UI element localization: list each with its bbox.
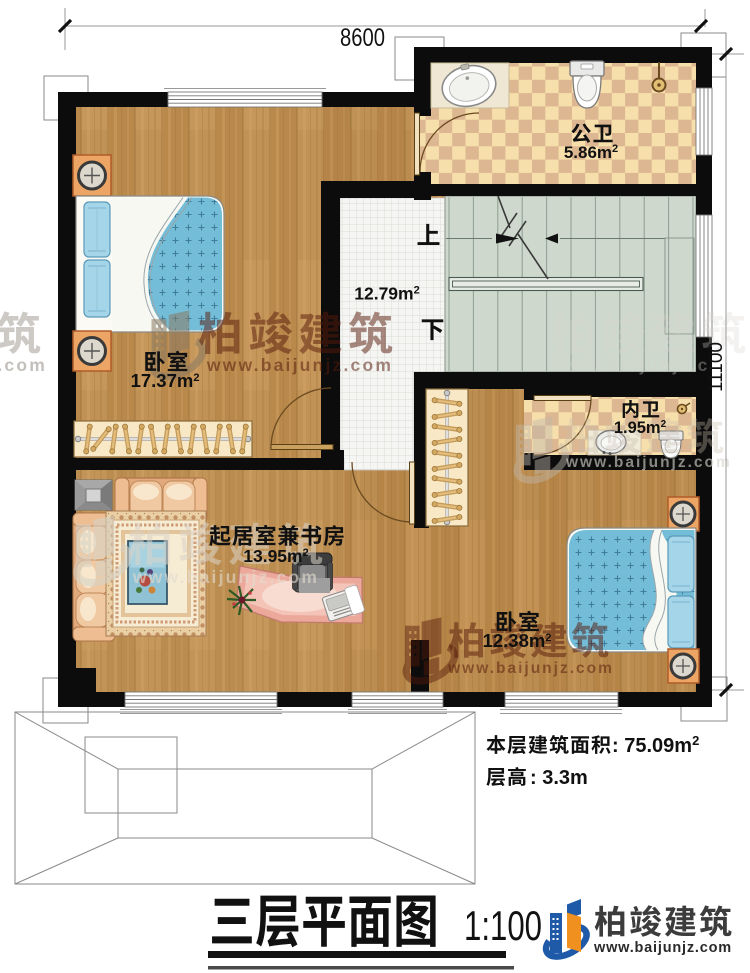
- svg-text:www.baijunjz.com: www.baijunjz.com: [593, 940, 732, 956]
- svg-text:z.com: z.com: [0, 355, 47, 375]
- svg-text:www.baijunjz.c: www.baijunjz.c: [553, 355, 710, 375]
- svg-text:17.37m2: 17.37m2: [131, 370, 200, 391]
- svg-text:: 3.3m: : 3.3m: [530, 767, 588, 789]
- svg-text:www.baijunjz.com: www.baijunjz.com: [132, 567, 319, 587]
- svg-text:www.baijunjz.com: www.baijunjz.com: [565, 454, 732, 471]
- svg-text:1.95m2: 1.95m2: [614, 419, 667, 437]
- svg-text:1:100: 1:100: [464, 902, 542, 949]
- svg-text:11100: 11100: [706, 342, 727, 392]
- svg-text:8600: 8600: [340, 24, 385, 52]
- svg-text:12.38m2: 12.38m2: [483, 630, 552, 651]
- svg-text:www.baijunjz.com: www.baijunjz.com: [206, 355, 393, 375]
- svg-text:5.86m2: 5.86m2: [564, 143, 618, 162]
- svg-text:www.baijunjz.com: www.baijunjz.com: [447, 660, 614, 677]
- svg-text:: 75.09m2: : 75.09m2: [612, 733, 699, 757]
- svg-text:13.95m2: 13.95m2: [243, 546, 308, 566]
- svg-text:12.79m2: 12.79m2: [354, 284, 419, 304]
